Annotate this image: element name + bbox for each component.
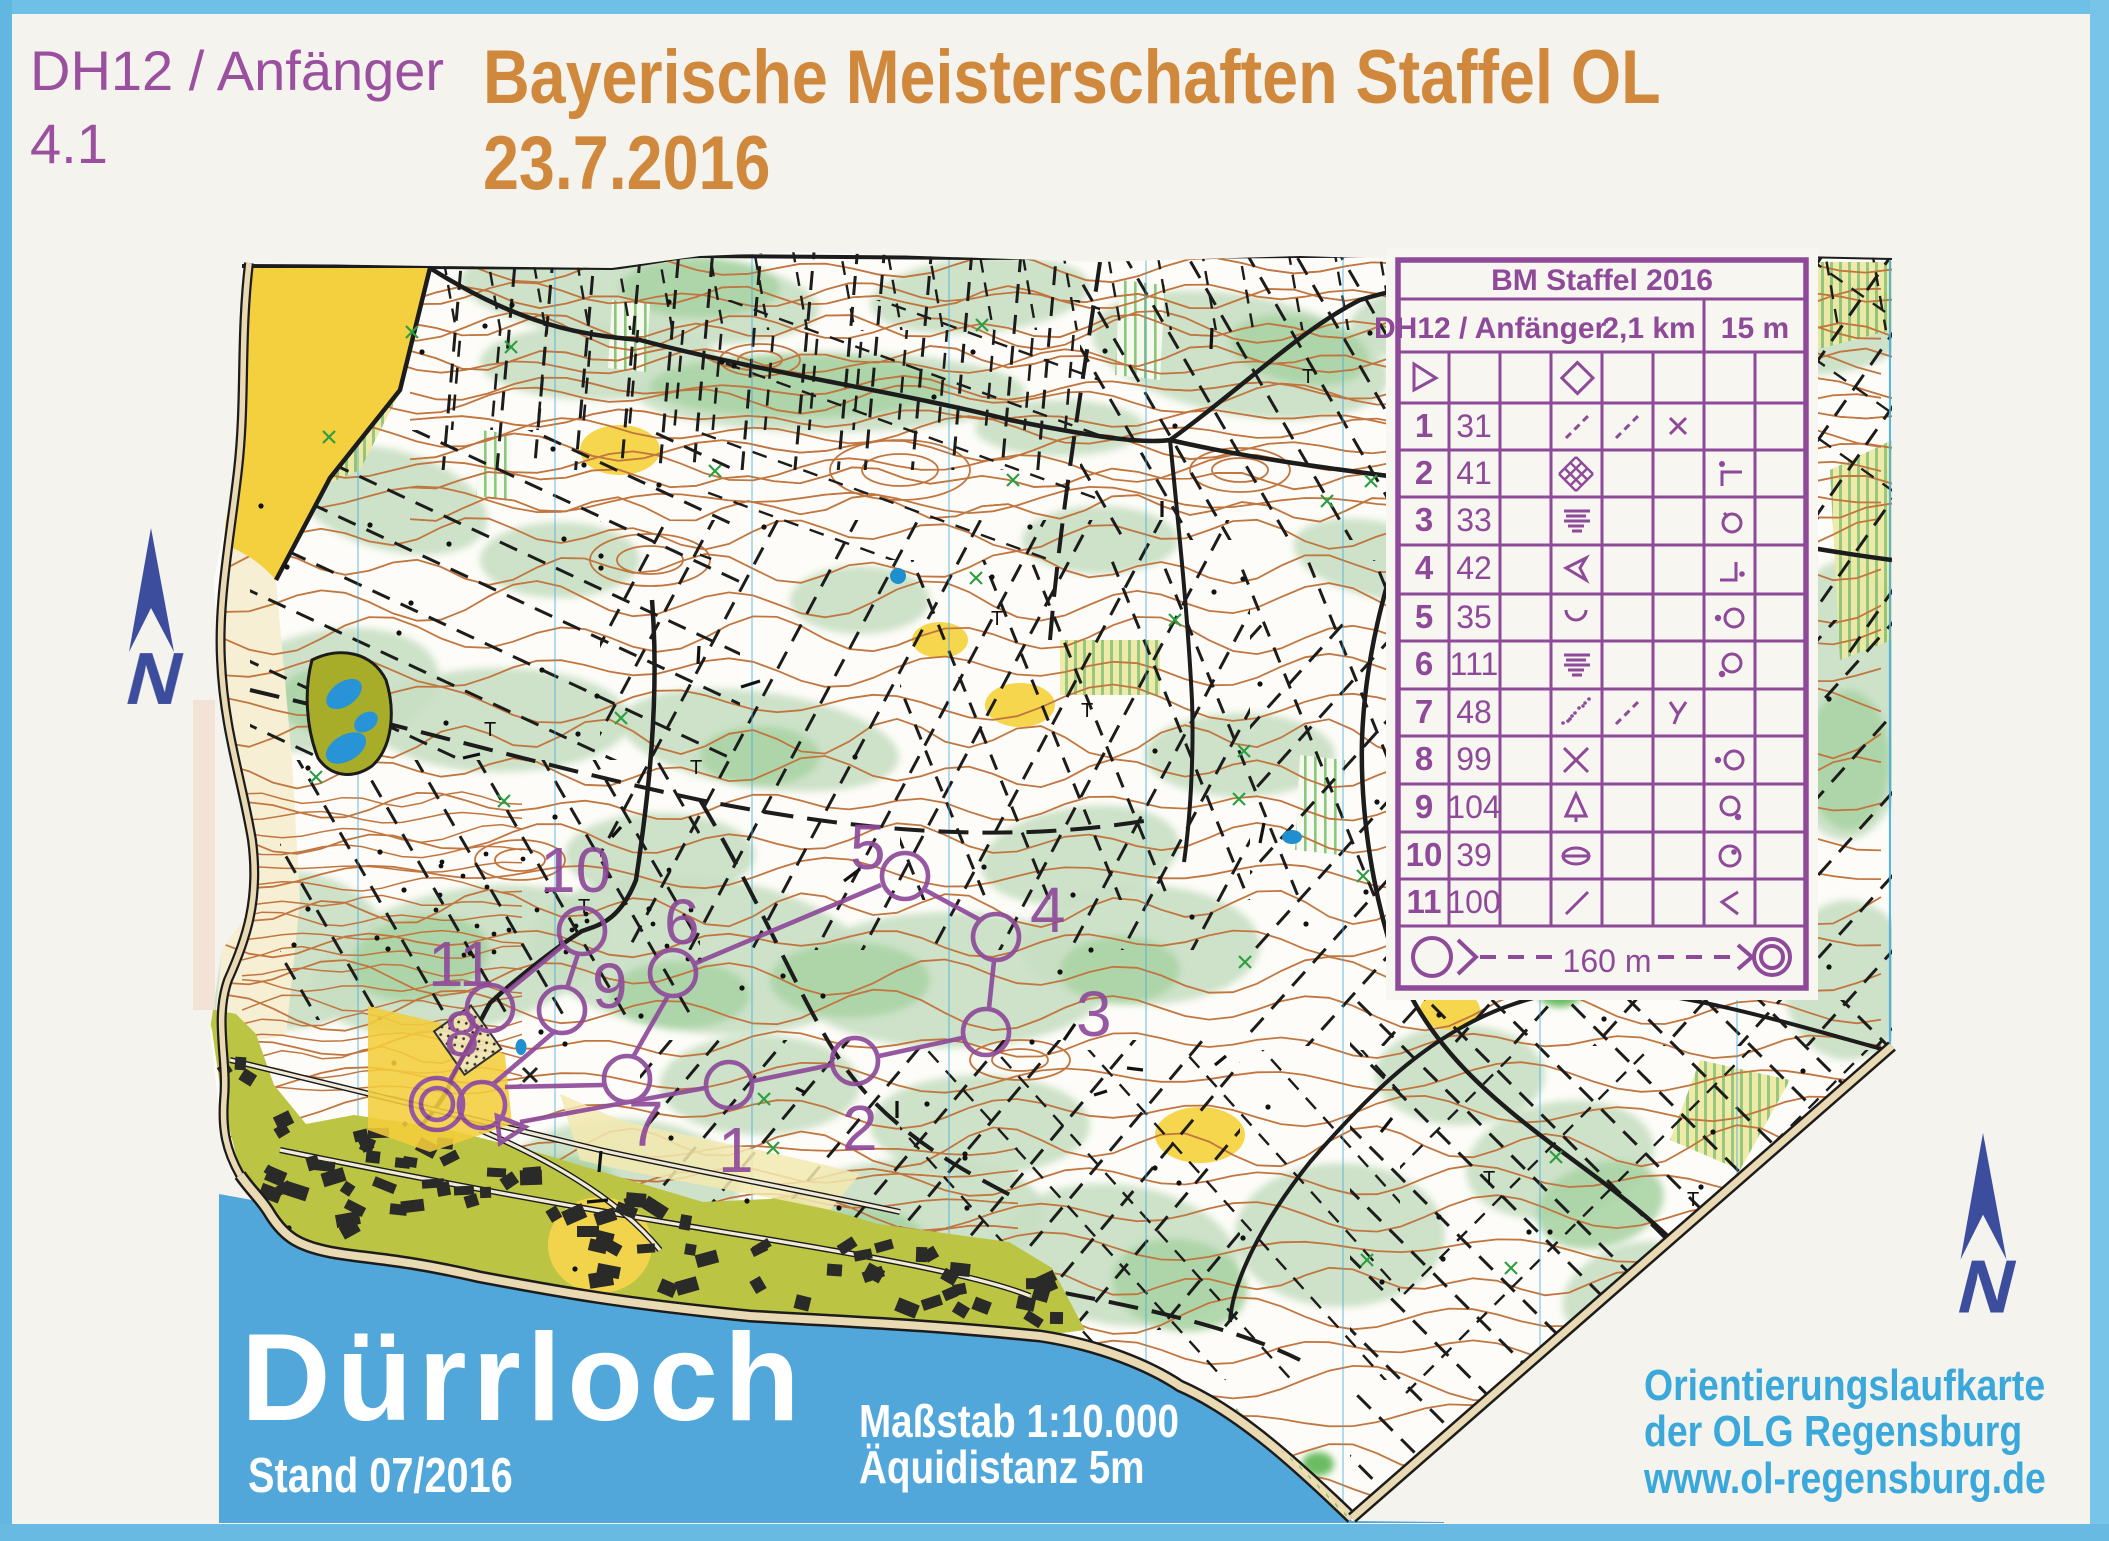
svg-text:6: 6 xyxy=(664,886,700,958)
svg-text:15 m: 15 m xyxy=(1721,312,1789,345)
svg-text:99: 99 xyxy=(1456,741,1492,777)
svg-text:104: 104 xyxy=(1447,789,1500,825)
svg-text:BM Staffel 2016: BM Staffel 2016 xyxy=(1491,264,1713,297)
svg-text:2: 2 xyxy=(1415,454,1433,491)
svg-text:3: 3 xyxy=(1415,501,1433,538)
svg-text:31: 31 xyxy=(1456,408,1492,444)
svg-text:100: 100 xyxy=(1447,884,1500,920)
svg-text:9: 9 xyxy=(592,950,628,1022)
svg-text:11: 11 xyxy=(1407,883,1442,920)
svg-text:T: T xyxy=(1687,1189,1699,1211)
svg-text:48: 48 xyxy=(1456,694,1492,730)
svg-text:T: T xyxy=(1483,1168,1495,1190)
svg-text:6: 6 xyxy=(1415,645,1433,682)
svg-text:160 m: 160 m xyxy=(1563,943,1652,979)
svg-text:8: 8 xyxy=(1415,740,1433,777)
svg-text:T: T xyxy=(690,757,702,779)
svg-text:35: 35 xyxy=(1456,599,1492,635)
svg-text:10: 10 xyxy=(1406,836,1443,873)
svg-text:4: 4 xyxy=(1030,874,1066,946)
svg-text:39: 39 xyxy=(1456,837,1492,873)
svg-text:5: 5 xyxy=(850,811,886,883)
svg-text:T: T xyxy=(1081,700,1093,722)
svg-text:11: 11 xyxy=(428,928,494,1000)
svg-text:2: 2 xyxy=(842,1092,878,1164)
svg-text:7: 7 xyxy=(1415,693,1433,730)
svg-text:8: 8 xyxy=(444,998,480,1070)
svg-text:42: 42 xyxy=(1456,550,1492,586)
svg-text:2,1 km: 2,1 km xyxy=(1602,312,1695,345)
svg-text:9: 9 xyxy=(1415,788,1433,825)
svg-text:41: 41 xyxy=(1456,455,1492,491)
svg-text:10: 10 xyxy=(540,834,611,906)
svg-text:7: 7 xyxy=(628,1088,664,1160)
svg-text:T: T xyxy=(1302,366,1314,388)
svg-text:5: 5 xyxy=(1415,598,1433,635)
svg-text:1: 1 xyxy=(1415,407,1433,444)
svg-text:DH12 / Anfänger: DH12 / Anfänger xyxy=(1374,312,1607,345)
svg-text:T: T xyxy=(484,719,496,741)
svg-text:111: 111 xyxy=(1450,646,1499,682)
svg-text:4: 4 xyxy=(1415,549,1434,586)
svg-text:33: 33 xyxy=(1456,502,1492,538)
svg-text:3: 3 xyxy=(1076,978,1112,1050)
svg-text:T: T xyxy=(991,608,1003,630)
svg-text:1: 1 xyxy=(718,1114,754,1186)
